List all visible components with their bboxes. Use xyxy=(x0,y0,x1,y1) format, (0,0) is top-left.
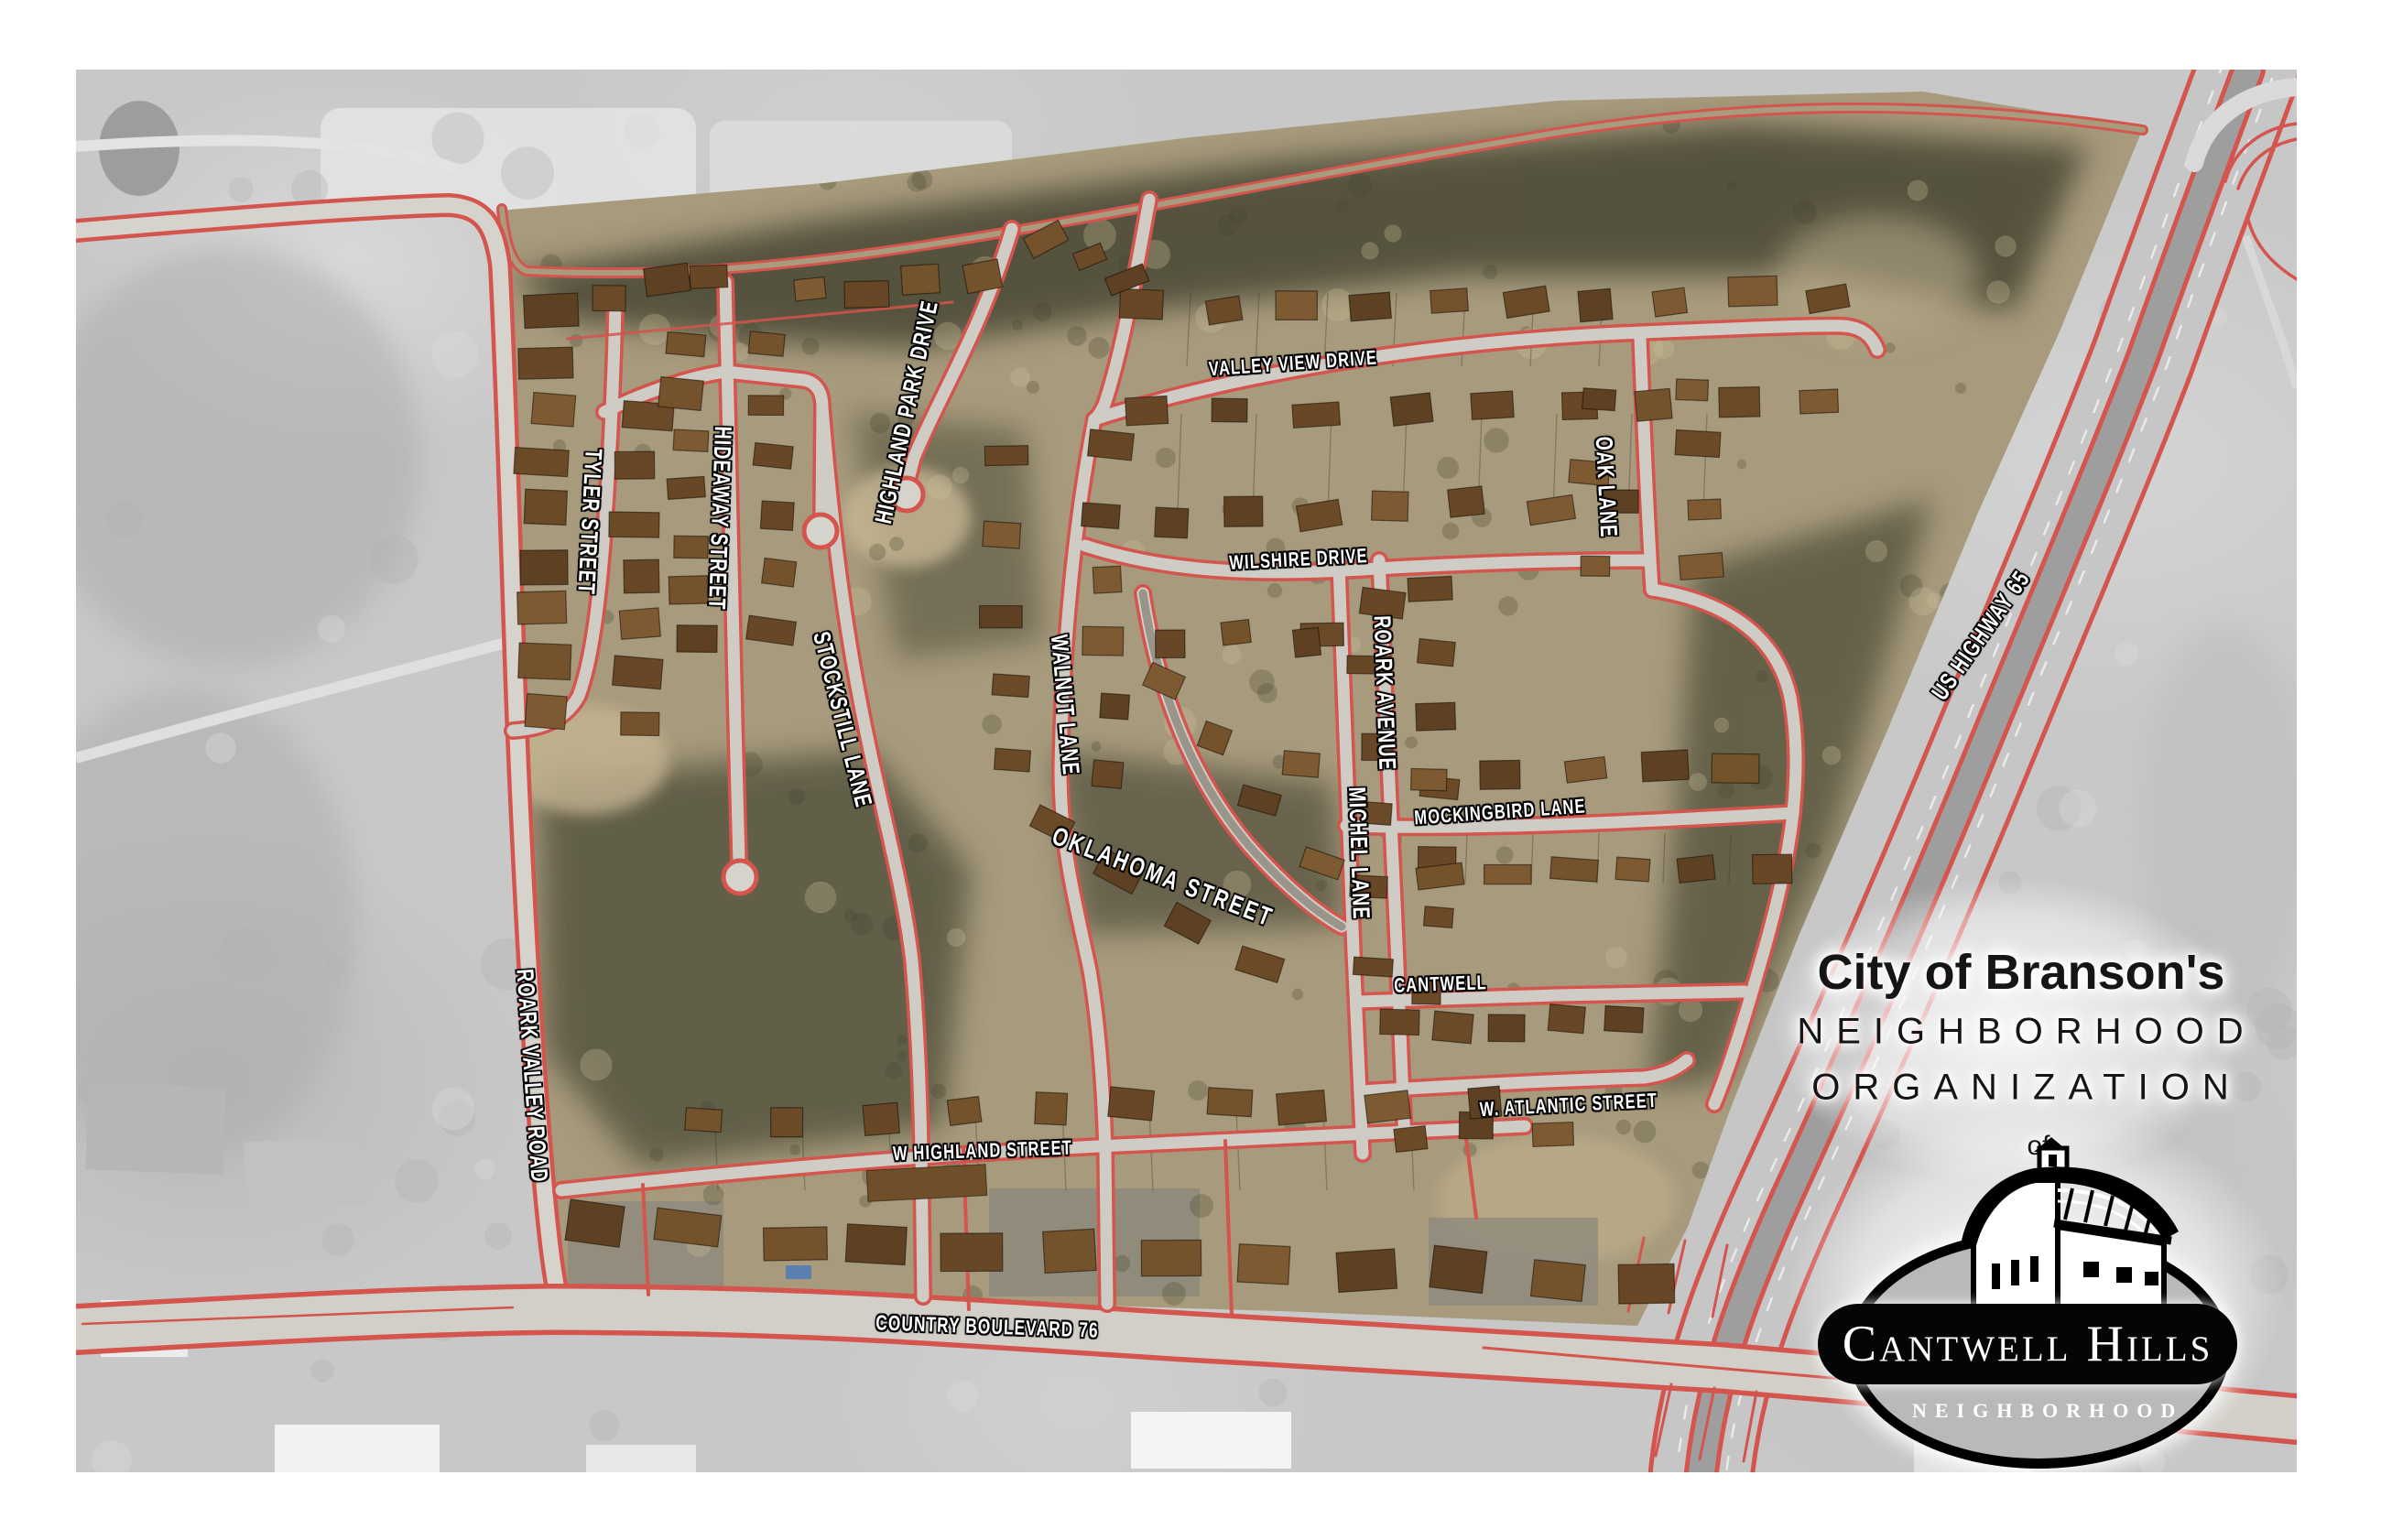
house xyxy=(1224,496,1263,526)
house xyxy=(1550,857,1599,882)
terrain-speckle xyxy=(1190,1194,1213,1218)
terrain-speckle xyxy=(1316,880,1327,891)
terrain-speckle xyxy=(1088,337,1109,358)
terrain-speckle xyxy=(952,467,969,483)
house xyxy=(1753,854,1792,884)
house xyxy=(1372,491,1408,521)
house xyxy=(1484,864,1532,884)
terrain-speckle xyxy=(228,177,253,201)
house xyxy=(1578,288,1613,321)
house xyxy=(609,512,659,537)
house xyxy=(1349,292,1391,321)
house xyxy=(1043,1229,1096,1273)
house xyxy=(524,489,567,525)
house xyxy=(1394,1126,1428,1153)
house xyxy=(613,656,663,689)
house xyxy=(1221,620,1251,645)
house xyxy=(1359,587,1406,619)
house xyxy=(644,263,691,297)
terrain-speckle xyxy=(1223,645,1242,665)
house xyxy=(1430,288,1469,313)
terrain-speckle xyxy=(369,535,418,583)
terrain-speckle xyxy=(1718,782,1735,799)
house xyxy=(674,536,709,559)
house xyxy=(1336,1249,1397,1293)
terrain-speckle xyxy=(1027,381,1039,394)
terrain-speckle xyxy=(432,1088,474,1130)
house xyxy=(1277,1090,1327,1124)
street-label-roark-avenue: ROARK AVENUE xyxy=(1368,615,1402,771)
house xyxy=(940,1233,1003,1272)
house xyxy=(994,748,1030,772)
terrain-speckle xyxy=(889,537,904,551)
terrain-speckle xyxy=(1605,947,1627,969)
terrain-speckle xyxy=(1831,1270,1843,1282)
terrain-speckle xyxy=(1727,180,1737,190)
house xyxy=(1532,1122,1573,1147)
house xyxy=(764,1227,828,1261)
house xyxy=(1292,402,1341,428)
terrain-speckle xyxy=(869,544,886,560)
house xyxy=(1207,1088,1253,1117)
house xyxy=(983,521,1021,548)
terrain-speckle xyxy=(947,928,965,947)
house xyxy=(1675,429,1721,457)
house xyxy=(1530,1260,1585,1302)
house xyxy=(1390,393,1433,426)
house xyxy=(1728,276,1778,307)
terrain-speckle xyxy=(2250,1255,2289,1295)
house xyxy=(1353,957,1393,977)
house xyxy=(1618,1263,1675,1304)
house xyxy=(1635,388,1672,421)
house xyxy=(762,558,797,587)
terrain-speckle xyxy=(1092,742,1102,752)
title-neighborhood: NEIGHBORHOOD xyxy=(1797,1012,2256,1053)
terrain-speckle xyxy=(589,1410,619,1440)
house xyxy=(1212,398,1247,422)
logo-name: Cantwell Hills xyxy=(1843,1318,2213,1370)
house xyxy=(1418,639,1456,667)
terrain-speckle xyxy=(474,1159,495,1179)
title-organization: ORGANIZATION xyxy=(1811,1068,2241,1109)
house xyxy=(673,429,709,451)
terrain-speckle xyxy=(1909,588,1938,616)
house xyxy=(1719,386,1760,417)
terrain-speckle xyxy=(982,714,1001,733)
terrain-speckle xyxy=(395,1159,439,1203)
house xyxy=(844,281,889,309)
terrain-speckle xyxy=(2115,642,2139,667)
terrain-speckle xyxy=(1259,1379,1288,1407)
terrain-speckle xyxy=(649,1147,663,1161)
house xyxy=(1411,768,1447,790)
terrain-speckle xyxy=(1616,1120,1632,1135)
house xyxy=(1416,702,1456,731)
house xyxy=(658,377,704,411)
terrain-speckle xyxy=(1737,460,1746,469)
terrain-speckle xyxy=(1855,813,1879,837)
terrain-speckle xyxy=(1384,224,1401,242)
house xyxy=(531,393,576,428)
terrain-speckle xyxy=(1437,457,1459,479)
house xyxy=(619,608,660,639)
terrain-speckle xyxy=(318,615,345,643)
house xyxy=(1488,1014,1525,1042)
terrain-speckle xyxy=(1865,540,1887,562)
house xyxy=(760,501,794,530)
terrain-speckle xyxy=(931,1084,947,1100)
terrain-speckle xyxy=(766,131,802,167)
terrain-speckle xyxy=(1348,173,1372,197)
terrain-speckle xyxy=(1955,383,1966,394)
house xyxy=(1676,379,1709,401)
house xyxy=(1205,296,1243,325)
house xyxy=(1581,556,1610,576)
barn-icon xyxy=(1919,1124,2193,1320)
house xyxy=(666,331,706,356)
terrain-speckle xyxy=(1188,1080,1208,1101)
terrain-speckle xyxy=(703,1185,724,1206)
terrain-speckle xyxy=(2139,1449,2165,1472)
house xyxy=(1408,576,1452,602)
house xyxy=(1156,630,1185,658)
terrain-speckle xyxy=(1885,342,1895,352)
terrain-speckle xyxy=(570,334,582,347)
house xyxy=(1108,1087,1155,1121)
street-label-cantwell: CANTWELL xyxy=(1394,971,1487,998)
terrain-speckle xyxy=(1495,846,1513,863)
house xyxy=(748,396,783,416)
house xyxy=(1364,1090,1411,1123)
house xyxy=(614,451,654,479)
house xyxy=(1092,760,1124,788)
house xyxy=(984,446,1027,466)
house xyxy=(845,1224,907,1265)
house xyxy=(1432,1011,1473,1044)
house xyxy=(523,293,579,329)
terrain-speckle xyxy=(908,833,927,852)
terrain-speckle xyxy=(1162,1282,1186,1306)
terrain-speckle xyxy=(1010,367,1029,386)
terrain-speckle xyxy=(1067,326,1087,346)
logo-subtitle: NEIGHBORHOOD xyxy=(1912,1399,2141,1423)
terrain-speckle xyxy=(1756,670,1768,683)
terrain-speckle xyxy=(897,1051,907,1061)
page-title: City of Branson's xyxy=(1818,944,2225,1001)
house xyxy=(1688,499,1722,520)
house xyxy=(1448,486,1484,517)
terrain-speckle xyxy=(105,500,143,537)
terrain-speckle xyxy=(325,954,348,977)
house xyxy=(1119,288,1163,320)
house xyxy=(1548,1004,1585,1034)
house xyxy=(1641,750,1689,782)
house xyxy=(794,277,827,301)
house xyxy=(1615,857,1650,882)
house xyxy=(866,1165,987,1202)
terrain-speckle xyxy=(1995,235,2016,256)
house xyxy=(1380,1009,1419,1035)
house xyxy=(520,550,568,585)
terrain-speckle xyxy=(1689,773,1707,791)
terrain-speckle xyxy=(1875,1179,1895,1198)
house xyxy=(1679,552,1723,580)
house xyxy=(1471,391,1514,419)
house xyxy=(771,1108,803,1137)
terrain-speckle xyxy=(1442,523,1460,540)
house xyxy=(1799,389,1839,414)
terrain-speckle xyxy=(805,882,837,914)
terrain-speckle xyxy=(1908,180,1929,201)
terrain-speckle xyxy=(1033,303,1051,321)
terrain-speckle xyxy=(947,1381,978,1412)
house xyxy=(677,625,717,653)
terrain-speckle xyxy=(484,1222,512,1250)
logo-nameplate: Cantwell Hills xyxy=(1818,1304,2237,1384)
house xyxy=(1035,1092,1068,1125)
house xyxy=(1125,396,1169,425)
terrain-speckle xyxy=(1692,1162,1710,1179)
terrain-speckle xyxy=(1714,718,1730,733)
terrain-speckle xyxy=(801,337,819,354)
terrain-speckle xyxy=(432,113,484,165)
terrain-speckle xyxy=(1939,582,1963,607)
house xyxy=(1564,757,1606,784)
terrain-speckle xyxy=(321,1223,354,1256)
blue-roof-building xyxy=(786,1265,811,1279)
house xyxy=(1282,751,1320,778)
house xyxy=(1652,287,1688,317)
house xyxy=(1480,760,1520,789)
terrain-speckle xyxy=(844,909,857,922)
terrain-speckle xyxy=(1249,669,1275,695)
terrain-speckle xyxy=(912,169,933,190)
terrain-speckle xyxy=(1998,871,2021,894)
house xyxy=(992,674,1029,698)
terrain-speckle xyxy=(1217,214,1238,235)
house xyxy=(1082,626,1124,656)
house xyxy=(753,443,793,470)
house xyxy=(1082,503,1121,529)
house xyxy=(1582,388,1616,411)
terrain-speckle xyxy=(581,1049,613,1081)
terrain-speckle xyxy=(1806,843,1821,859)
house xyxy=(980,606,1023,628)
terrain-speckle xyxy=(1986,280,2009,303)
terrain-speckle xyxy=(1267,583,1282,598)
street-label-michel-lane: MICHEL LANE xyxy=(1343,786,1375,920)
house xyxy=(1093,566,1122,593)
house xyxy=(690,265,728,288)
house xyxy=(947,1097,982,1126)
terrain-speckle xyxy=(1634,1121,1657,1144)
house xyxy=(1141,1240,1201,1275)
house xyxy=(593,286,625,311)
terrain-speckle xyxy=(1361,242,1378,259)
house xyxy=(525,693,567,729)
house xyxy=(518,643,571,679)
house xyxy=(1712,754,1759,783)
terrain-speckle xyxy=(788,788,805,805)
house xyxy=(1155,507,1189,538)
house xyxy=(748,331,785,356)
terrain-speckle xyxy=(501,146,554,200)
map-poster: TYLER STREETHIDEAWAY STREETHIGHLAND PARK… xyxy=(0,0,2381,1540)
house xyxy=(1276,291,1317,320)
house xyxy=(1292,627,1321,657)
house xyxy=(1430,1245,1487,1293)
terrain-speckle xyxy=(1012,320,1023,331)
terrain-speckle xyxy=(1654,339,1674,359)
terrain-speckle xyxy=(310,1359,334,1383)
house xyxy=(565,1199,625,1248)
terrain-speckle xyxy=(625,114,659,148)
house xyxy=(1088,429,1135,461)
house xyxy=(1677,855,1715,884)
terrain-speckle xyxy=(92,1440,132,1472)
terrain-speckle xyxy=(897,1036,908,1046)
terrain-speckle xyxy=(789,1144,800,1155)
terrain-speckle xyxy=(1822,746,1842,765)
terrain-speckle xyxy=(1483,265,1497,279)
terrain-speckle xyxy=(205,732,235,763)
house xyxy=(624,559,659,593)
aerial-photo: TYLER STREETHIDEAWAY STREETHIGHLAND PARK… xyxy=(76,70,2297,1472)
house xyxy=(1100,693,1130,720)
house xyxy=(667,476,705,499)
house xyxy=(514,448,569,477)
terrain-speckle xyxy=(1793,201,1817,224)
house xyxy=(901,264,940,295)
house xyxy=(621,712,659,736)
terrain-speckle xyxy=(1405,736,1418,749)
house xyxy=(1237,1244,1290,1285)
street-label-oak-lane: OAK LANE xyxy=(1590,436,1624,538)
house xyxy=(962,259,1003,294)
terrain-speckle xyxy=(2059,789,2096,827)
terrain-speckle xyxy=(886,1062,902,1079)
house xyxy=(518,347,573,379)
house xyxy=(863,1102,899,1135)
house xyxy=(517,591,567,624)
terrain-speckle xyxy=(1484,428,1508,452)
terrain-speckle xyxy=(220,927,273,981)
house xyxy=(1423,906,1453,928)
terrain-speckle xyxy=(1156,448,1176,468)
terrain-speckle xyxy=(1292,989,1303,1000)
house xyxy=(685,1108,723,1133)
terrain-speckle xyxy=(1498,596,1517,615)
terrain-speckle xyxy=(1335,200,1349,213)
terrain-speckle xyxy=(927,474,951,499)
terrain-speckle xyxy=(432,331,479,378)
house xyxy=(1604,1006,1644,1033)
